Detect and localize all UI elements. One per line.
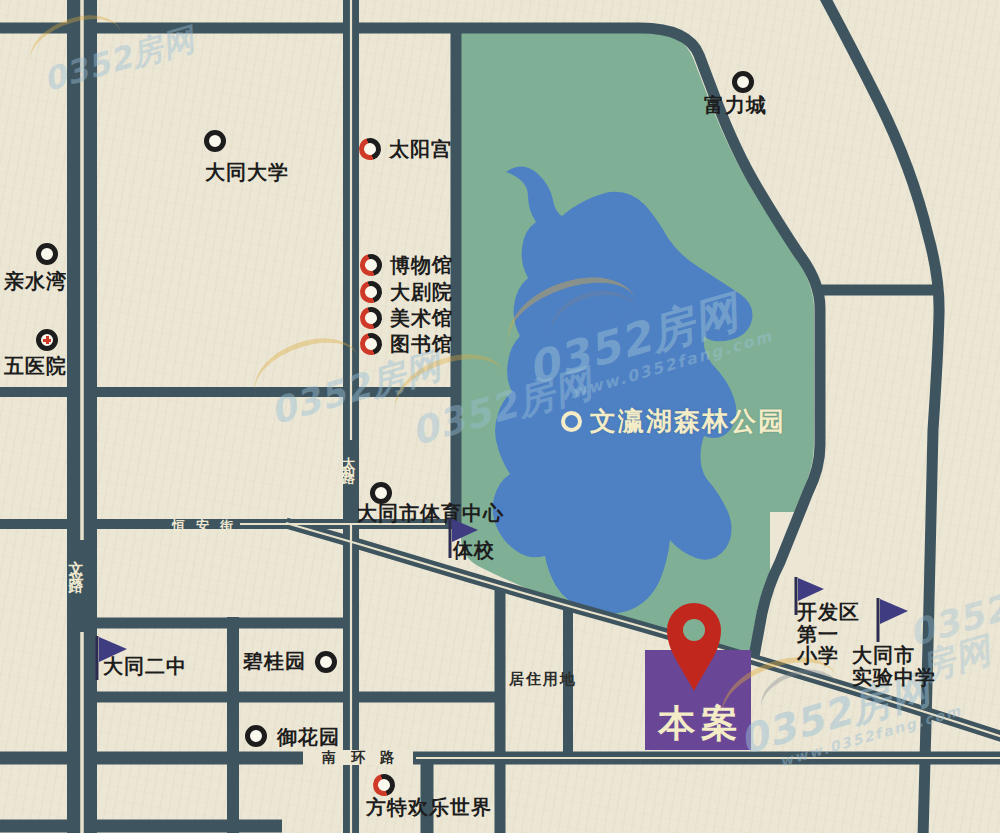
poi-erzhong: 大同二中: [103, 656, 187, 678]
park-marker-icon: [561, 411, 582, 432]
poi-meishuguan: 美术馆: [390, 308, 453, 330]
zone-label: 居住用地: [509, 671, 577, 687]
poi-kaifaqu: 开发区 第一 小学: [797, 602, 860, 667]
poi-tiyu-center: 大同市体育中心: [357, 503, 504, 525]
road-label-nanhuan: 南环路: [307, 749, 409, 767]
road-label-wenxing: 文兴路: [66, 548, 85, 575]
poi-fulicheng: 富力城: [704, 95, 767, 117]
poi-biguiyuan: 碧桂园: [243, 651, 306, 673]
wuyiyuan-marker-icon: [36, 329, 58, 351]
biguiyuan-marker-icon: [315, 651, 337, 673]
poi-park-label: 文瀛湖森林公园: [590, 407, 786, 435]
location-map: 0352房网 0352房网 0352房网 www.0352fang.com 03…: [0, 0, 1000, 833]
fulicheng-marker-icon: [732, 71, 754, 93]
shiyan-flag-icon: [874, 596, 910, 644]
datong-univ-marker-icon: [204, 130, 226, 152]
yuhuayuan-marker-icon: [245, 725, 267, 747]
poi-shiyan: 大同市 实验中学: [852, 645, 936, 688]
site-label: 本案: [647, 699, 749, 749]
poi-taiyanggong: 太阳宫: [389, 139, 452, 161]
poi-yuhuayuan: 御花园: [277, 727, 340, 749]
road-label-hengan: 恒安街: [172, 517, 244, 535]
poi-datong-univ: 大同大学: [205, 162, 289, 184]
poi-bowuguan: 博物馆: [390, 255, 453, 277]
poi-qinshuiwan: 亲水湾: [4, 271, 67, 293]
road-label-nanhuan-band: 南环路: [303, 750, 413, 765]
poi-fangte: 方特欢乐世界: [366, 797, 492, 819]
map-canvas: [0, 0, 1000, 833]
road-label-taihe: 太和路: [339, 446, 357, 470]
poi-tushuguan: 图书馆: [390, 334, 453, 356]
poi-wuyiyuan: 五医院: [4, 356, 67, 378]
qinshuiwan-marker-icon: [36, 243, 58, 265]
poi-dajuyuan: 大剧院: [390, 282, 453, 304]
poi-tixiao: 体校: [453, 540, 495, 562]
